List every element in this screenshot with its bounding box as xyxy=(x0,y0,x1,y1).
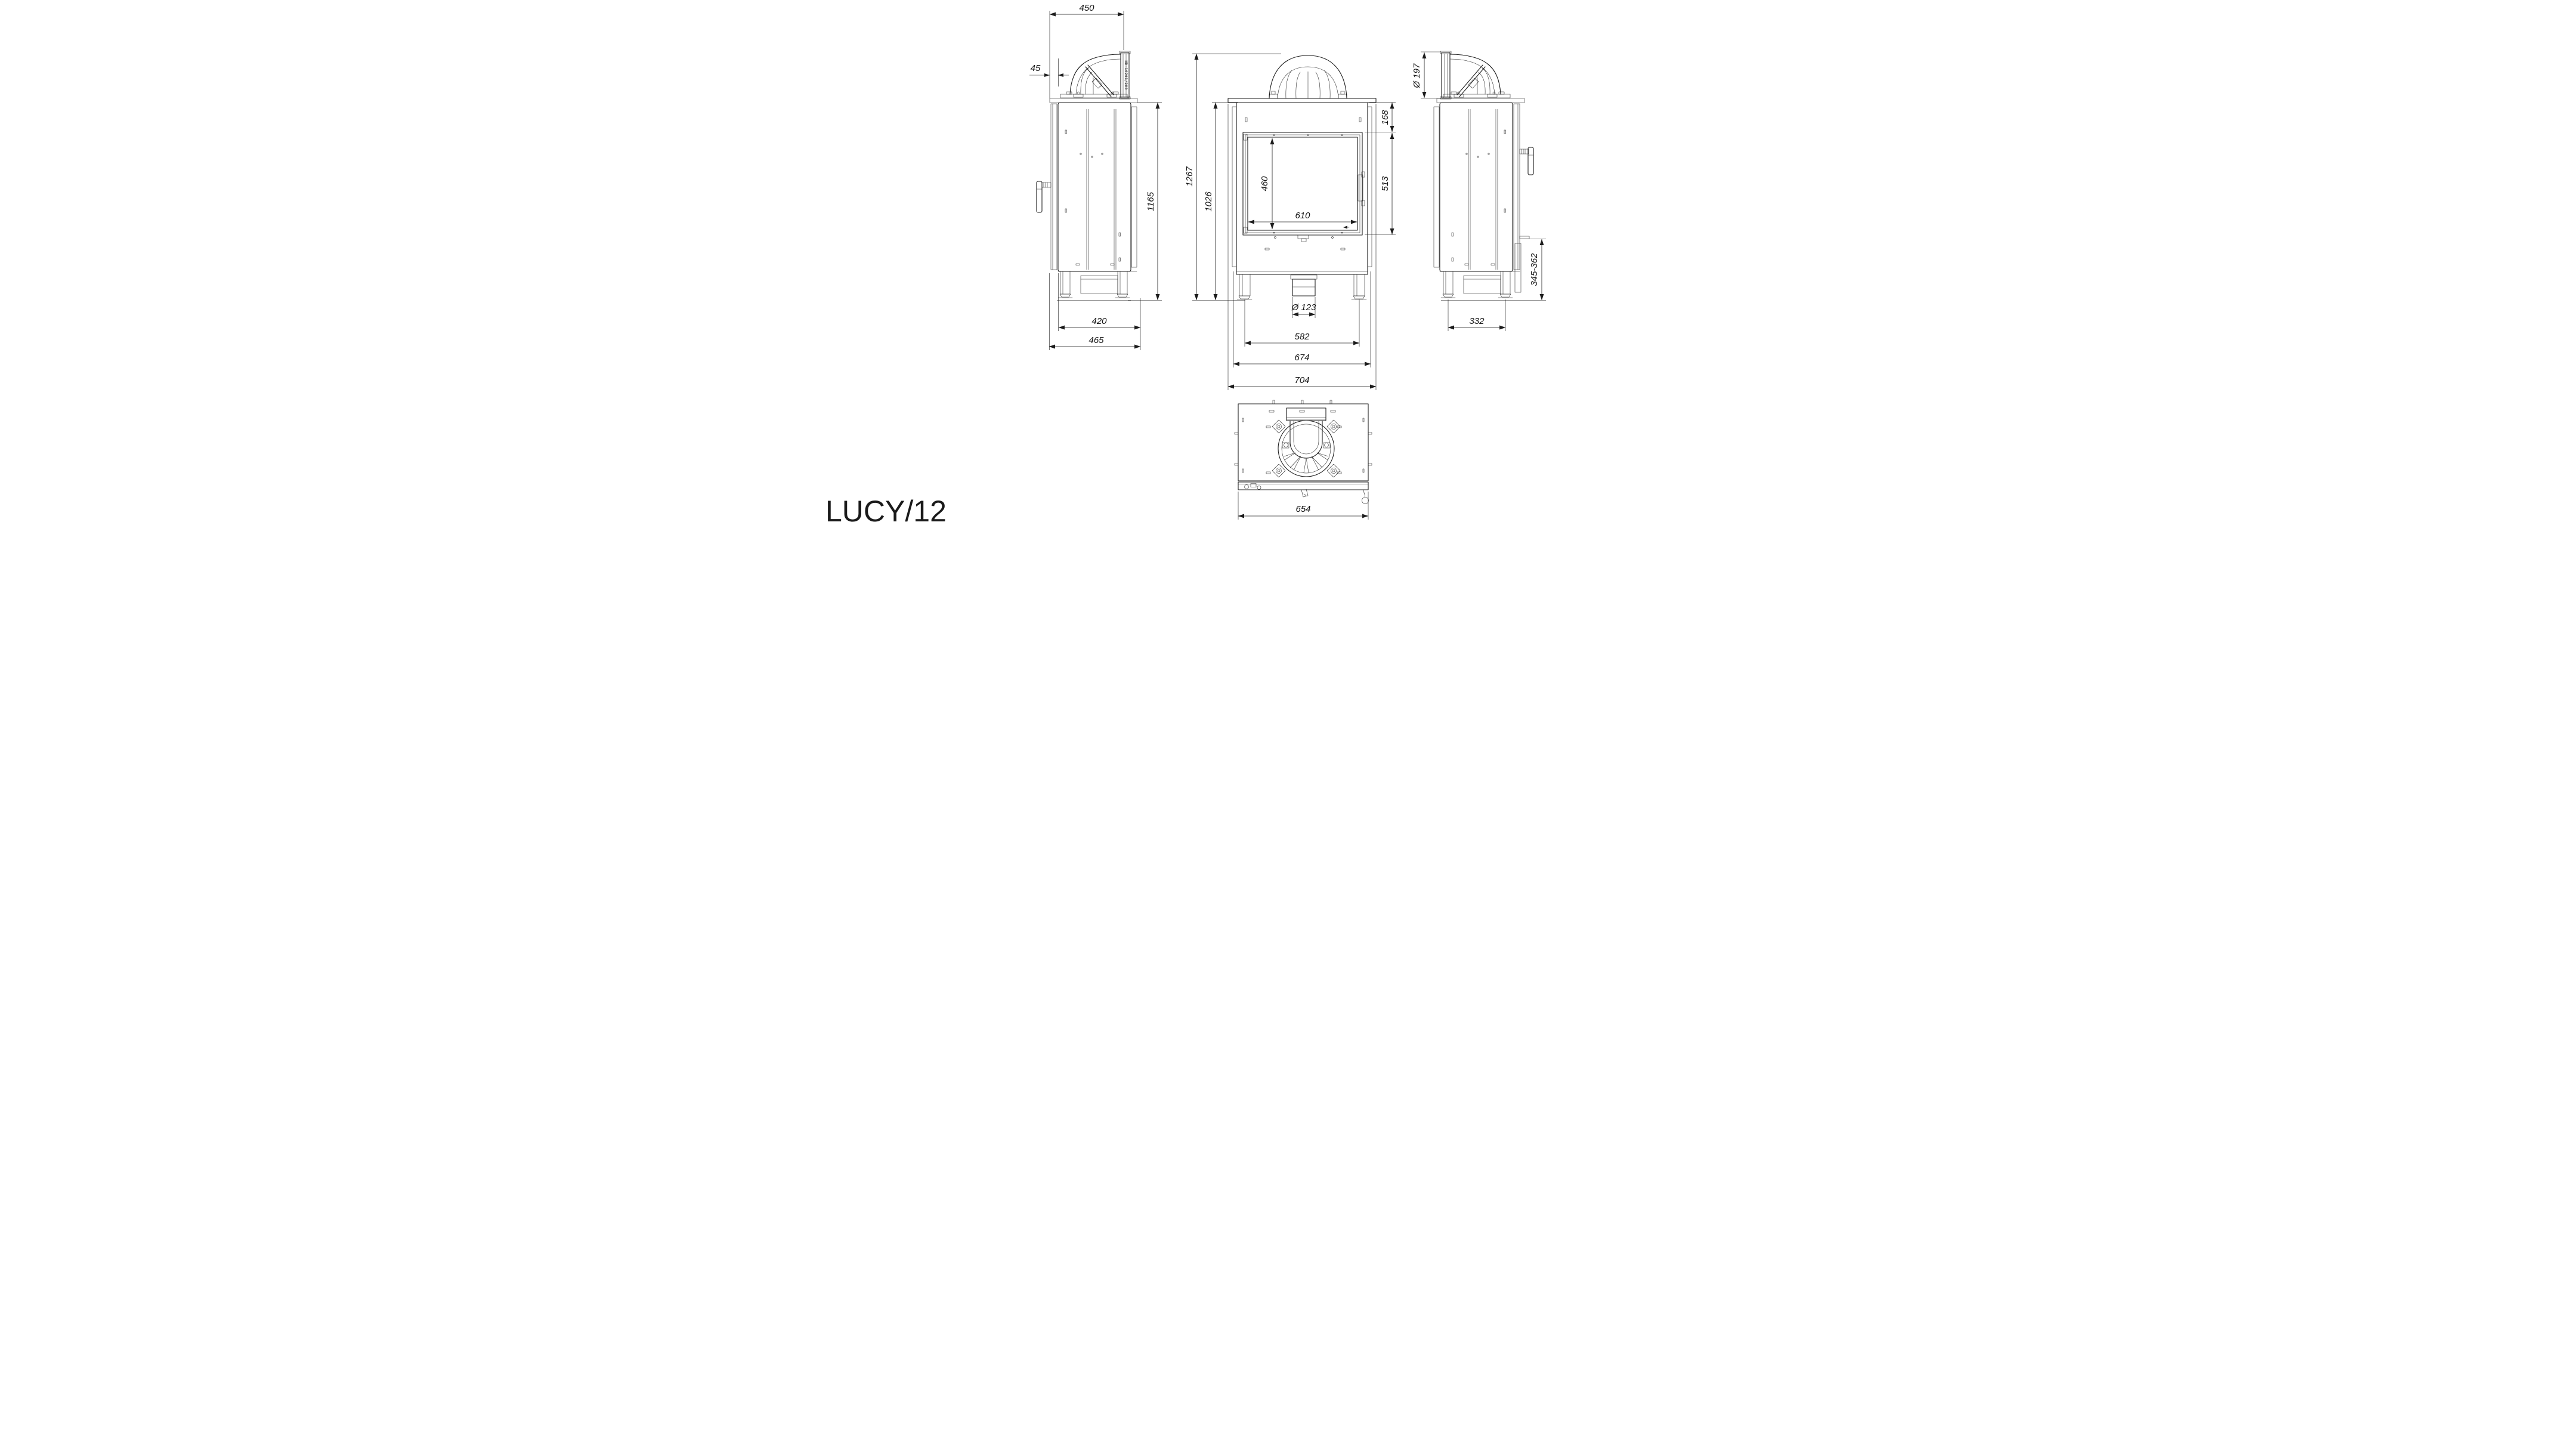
dim-654: 654 xyxy=(1295,504,1310,514)
bolt-pads xyxy=(1272,420,1340,477)
ash-drawer[interactable] xyxy=(1081,276,1118,293)
left-side-view xyxy=(1037,51,1137,298)
door-swing-arrow-icon xyxy=(1343,226,1347,229)
pull-ring[interactable] xyxy=(1362,498,1368,504)
dim-1165: 1165 xyxy=(1146,191,1156,211)
flue-elbow xyxy=(1060,51,1130,99)
top-view xyxy=(1235,400,1372,504)
legs xyxy=(1058,271,1130,298)
rib-spikes xyxy=(1284,453,1328,472)
dim-610: 610 xyxy=(1295,211,1310,221)
dim-332: 332 xyxy=(1469,316,1485,326)
support-strut xyxy=(1086,65,1114,97)
support-strut xyxy=(1457,65,1485,97)
top-plate xyxy=(1238,404,1368,481)
top-plate xyxy=(1228,98,1376,103)
body xyxy=(1236,103,1368,274)
pipe-marking: ND-10201/200 xyxy=(1124,60,1128,89)
front-view xyxy=(1228,55,1376,299)
drawing-page: 45045116542046512671026460610168513Ø 123… xyxy=(821,0,1756,526)
drawing-title: LUCY/12 xyxy=(825,495,947,526)
left-view-dimensions xyxy=(1029,11,1162,350)
technical-drawing: 45045116542046512671026460610168513Ø 123… xyxy=(821,0,1756,526)
rear-panel xyxy=(1131,107,1137,267)
dim-420: 420 xyxy=(1091,316,1107,326)
door-handle[interactable] xyxy=(1520,147,1533,175)
legs xyxy=(1441,271,1513,298)
dim-345-362: 345-362 xyxy=(1529,253,1539,286)
stiffener-ribs xyxy=(1087,109,1116,270)
door-edge xyxy=(1051,104,1057,270)
air-inlet-spigot xyxy=(1291,275,1317,296)
dim-dia197: Ø 197 xyxy=(1412,63,1422,89)
flue-elbow xyxy=(1440,51,1510,99)
front-rail xyxy=(1238,482,1369,504)
side-bolts xyxy=(1282,443,1330,448)
base-lip xyxy=(1520,236,1529,239)
dim-513: 513 xyxy=(1380,176,1390,191)
ash-drawer[interactable] xyxy=(1464,276,1501,293)
labels-layer: 45045116542046512671026460610168513Ø 123… xyxy=(825,3,1539,526)
plate-slots xyxy=(1235,400,1372,474)
dim-674: 674 xyxy=(1294,353,1309,363)
dim-1267: 1267 xyxy=(1185,166,1195,187)
flue-collar xyxy=(1272,408,1340,477)
dim-460: 460 xyxy=(1260,176,1270,191)
bottom-band xyxy=(1236,235,1368,271)
right-side-view xyxy=(1434,51,1533,298)
flue-outlet-flange xyxy=(1442,52,1450,98)
body-panel xyxy=(1058,103,1131,271)
dim-465: 465 xyxy=(1088,335,1104,345)
body-panel xyxy=(1440,103,1513,271)
dim-704: 704 xyxy=(1294,375,1309,385)
panel-slots xyxy=(1065,130,1121,265)
handle-wire[interactable] xyxy=(1363,490,1365,497)
flue-dome xyxy=(1269,55,1347,98)
door-handle[interactable] xyxy=(1037,181,1051,212)
dim-45: 45 xyxy=(1030,63,1040,73)
latch-tab[interactable] xyxy=(1301,489,1308,497)
dim-dia123: Ø 123 xyxy=(1291,302,1316,313)
dim-1026: 1026 xyxy=(1204,191,1214,212)
dim-168: 168 xyxy=(1380,110,1390,125)
dim-450: 450 xyxy=(1079,3,1094,13)
dim-582: 582 xyxy=(1294,332,1310,342)
